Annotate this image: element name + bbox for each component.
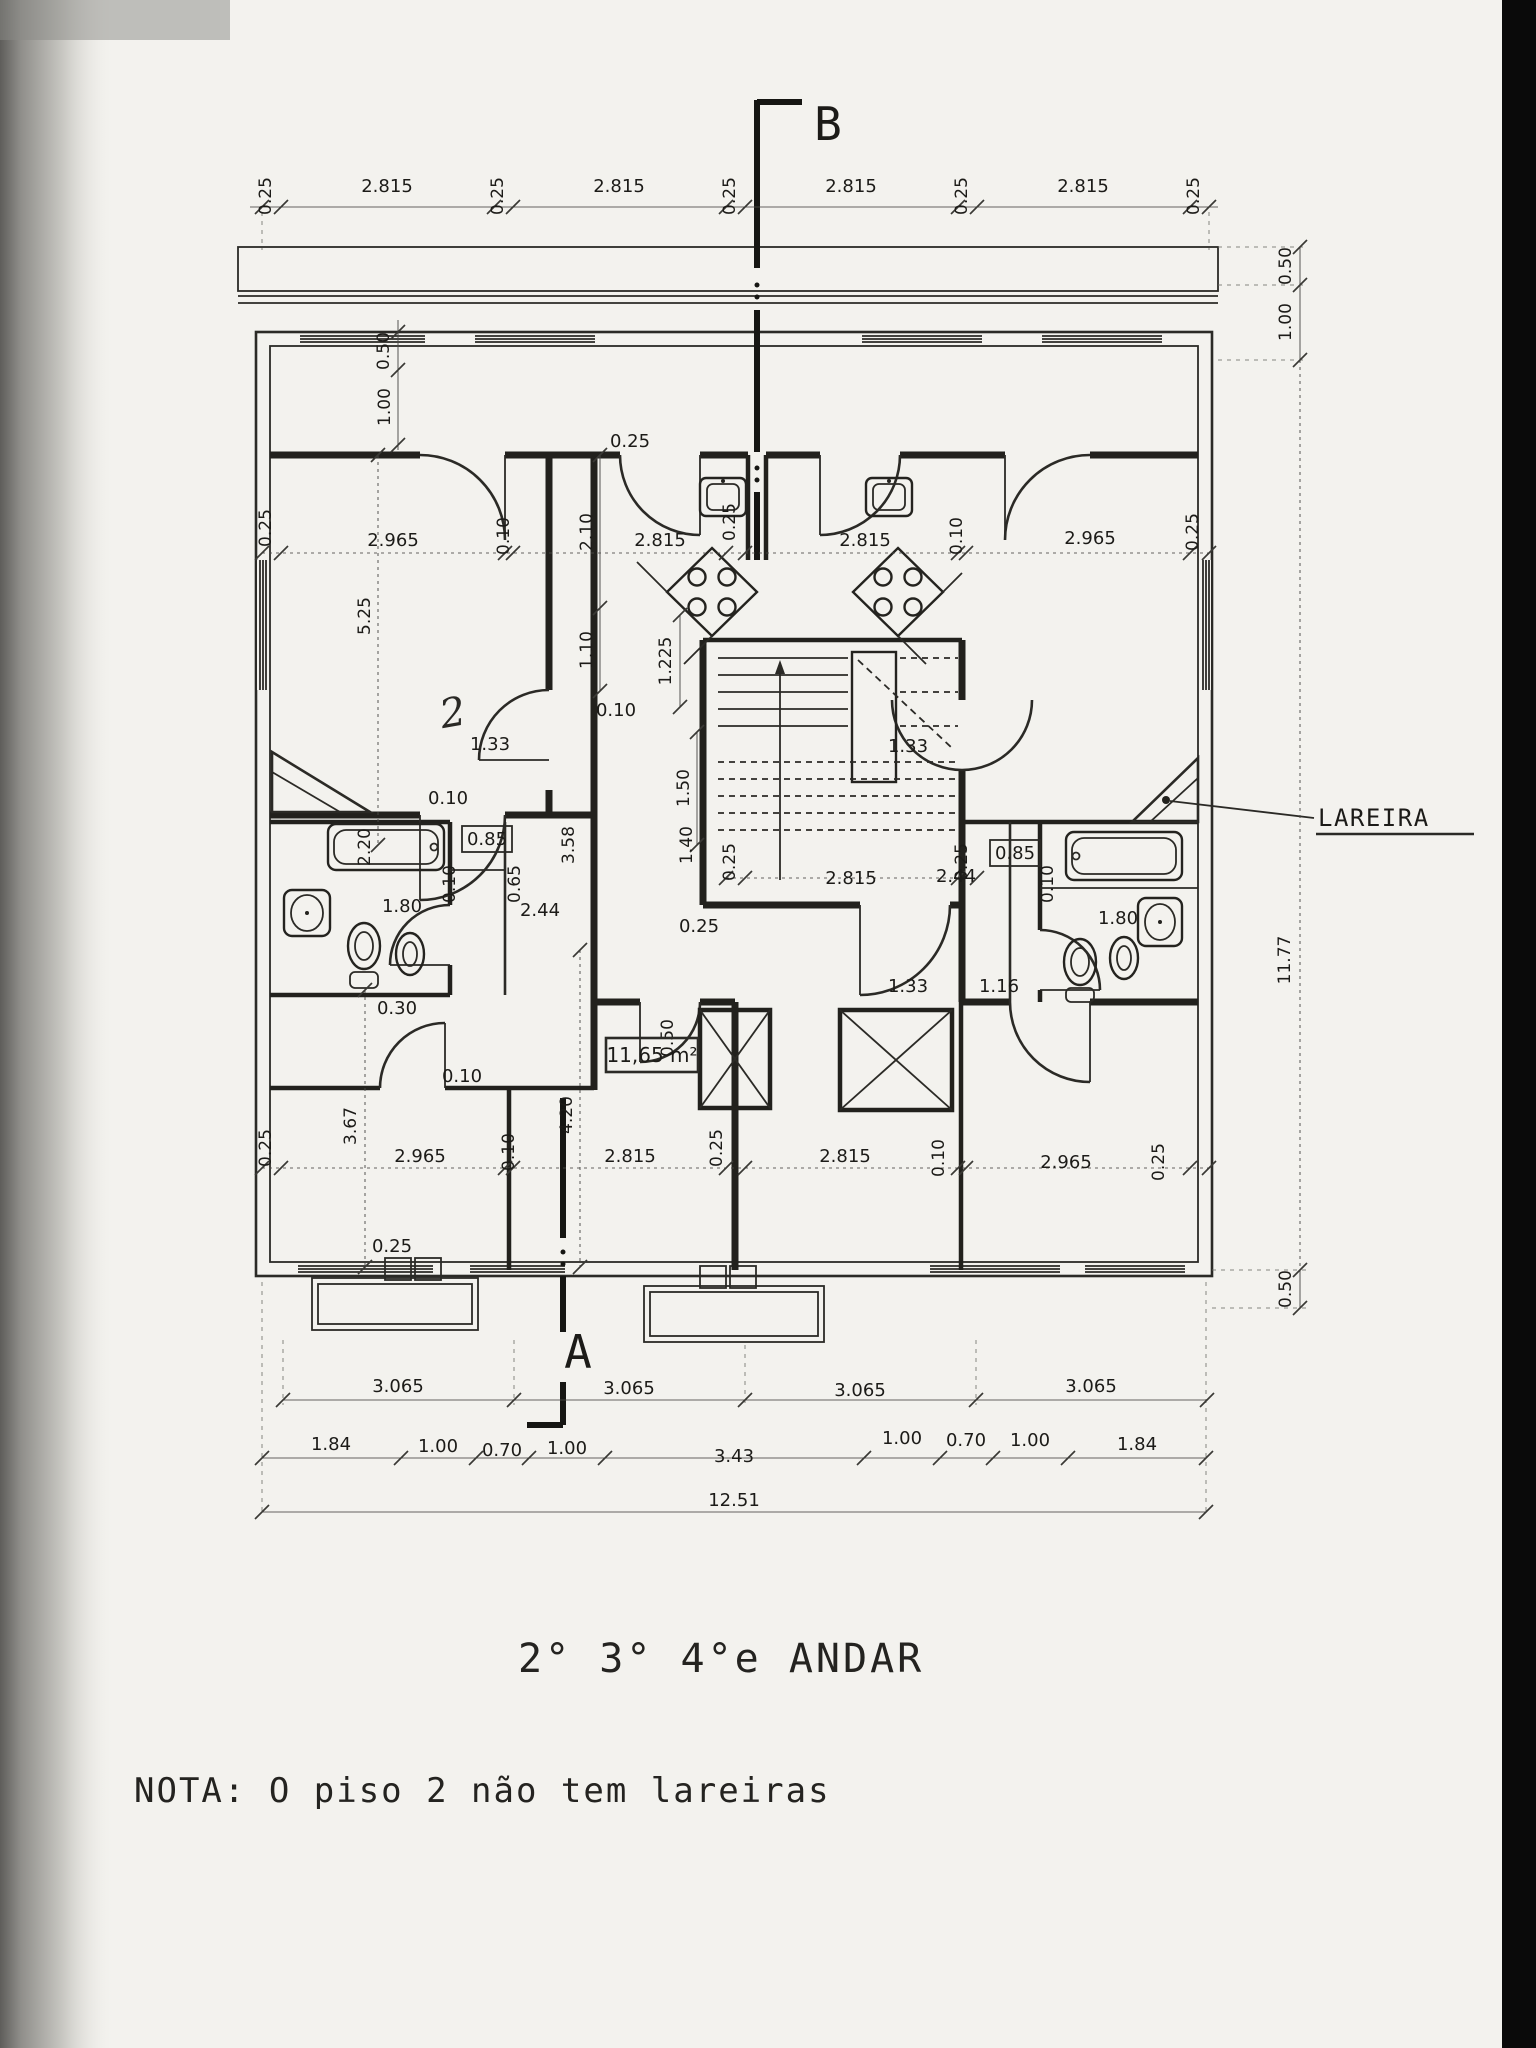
dim-label: 0.10: [499, 1133, 519, 1171]
dim-label: 0.10: [929, 1139, 949, 1177]
dim-label: 12.51: [708, 1490, 760, 1511]
lareira-label: LAREIRA: [1318, 804, 1430, 832]
dim-label: 0.10: [440, 865, 460, 903]
dim-label: 2.44: [520, 900, 560, 921]
dim-label: 2.815: [839, 530, 891, 551]
scan-edge-right: [1502, 0, 1536, 2048]
dim-label: 2.10: [577, 513, 597, 551]
scanned-floor-plan-page: LAREIRA B A: [0, 0, 1536, 2048]
lareira-leader-dot: [1162, 796, 1170, 804]
dim-label: 3.67: [341, 1107, 361, 1145]
dim-label: 1.00: [882, 1428, 922, 1449]
dim-label: 2.965: [367, 530, 419, 551]
dim-label: 0.25: [488, 177, 508, 215]
dim-label: 1.225: [656, 637, 676, 686]
dim-label: 0.25: [707, 1129, 727, 1167]
dim-label: 0.25: [720, 843, 740, 881]
dim-label: 2.815: [593, 176, 645, 197]
dim-label: 0.25: [1183, 513, 1203, 551]
dim-label: 1.80: [1098, 908, 1138, 929]
dim-label: 1.00: [1276, 303, 1296, 341]
dim-label: 0.70: [946, 1430, 986, 1451]
dim-label: 0.10: [428, 788, 468, 809]
dim-label: 1.84: [1117, 1434, 1157, 1455]
dim-label: 0.25: [256, 1129, 276, 1167]
dim-label: 0.25: [256, 509, 276, 547]
dim-label: 0.25: [720, 177, 740, 215]
dim-label: 0.50: [1276, 1270, 1296, 1308]
dim-label: 2.20: [355, 828, 375, 866]
dim-label: 0.30: [377, 998, 417, 1019]
dim-label: 2.815: [361, 176, 413, 197]
dim-label: 2.965: [394, 1146, 446, 1167]
floor-plan-drawing: LAREIRA B A: [0, 0, 1536, 2048]
section-b-label: B: [814, 97, 842, 151]
dim-label: 2.965: [1040, 1152, 1092, 1173]
dim-label: 0.10: [494, 517, 514, 555]
dim-label: 1.33: [888, 736, 928, 757]
dim-label: 2.965: [1064, 528, 1116, 549]
dim-label: 1.00: [375, 388, 395, 426]
plan-note: NOTA: O piso 2 não tem lareiras: [134, 1771, 831, 1811]
dim-label: 0.25: [720, 503, 740, 541]
dim-label: 0.10: [947, 517, 967, 555]
dim-label: 1.33: [470, 734, 510, 755]
dim-label: 1.50: [674, 769, 694, 807]
dim-label: 3.58: [559, 826, 579, 864]
scan-shadow-left: [0, 0, 115, 2048]
dim-label: 0.50: [374, 332, 394, 370]
dim-label: 3.065: [834, 1380, 886, 1401]
dim-label: 0.85: [995, 843, 1035, 864]
dim-label: 5.25: [355, 597, 375, 635]
dim-label: 0.10: [442, 1066, 482, 1087]
dim-label: 3.43: [714, 1446, 754, 1467]
dim-label: 0.25: [372, 1236, 412, 1257]
dim-label: 1.00: [418, 1436, 458, 1457]
dim-label: 4.20: [557, 1096, 577, 1134]
dim-label: 2.815: [1057, 176, 1109, 197]
dim-label: 2.815: [604, 1146, 656, 1167]
section-a-label: A: [564, 1325, 592, 1379]
dim-label: 2.44: [936, 866, 976, 887]
dim-label: 1.00: [1010, 1430, 1050, 1451]
dim-label: 0.25: [679, 916, 719, 937]
dim-label: 1.00: [547, 1438, 587, 1459]
dim-label: 1.16: [979, 976, 1019, 997]
dim-label: 0.25: [1184, 177, 1204, 215]
dim-label: 3.065: [372, 1376, 424, 1397]
dim-label: 0.65: [505, 865, 525, 903]
dim-label: 0.10: [596, 700, 636, 721]
dim-label: 0.25: [952, 177, 972, 215]
plan-title: 2° 3° 4°e ANDAR: [518, 1636, 924, 1682]
dim-label: 2.815: [634, 530, 686, 551]
dim-label: 0.50: [1276, 247, 1296, 285]
dim-label: 0.25: [256, 177, 276, 215]
dim-label: 2.815: [819, 1146, 871, 1167]
dim-label: 0.25: [1149, 1143, 1169, 1181]
dim-label: 1.33: [888, 976, 928, 997]
dim-label: 1.80: [382, 896, 422, 917]
dim-label: 3.065: [1065, 1376, 1117, 1397]
dim-label: 1.40: [677, 826, 697, 864]
dim-label: 11.77: [1275, 936, 1295, 985]
dim-label: 2.815: [825, 176, 877, 197]
dim-label: 1.10: [577, 631, 597, 669]
scan-shadow-top-left: [0, 0, 230, 40]
dim-label: 3.065: [603, 1378, 655, 1399]
dim-label: 0.10: [1038, 865, 1058, 903]
dim-label: 0.25: [610, 431, 650, 452]
dim-label: 0.85: [467, 829, 507, 850]
area-label: 11,65 m²: [606, 1043, 697, 1067]
dim-label: 1.84: [311, 1434, 351, 1455]
dim-label: 2.815: [825, 868, 877, 889]
dim-label: 0.70: [482, 1440, 522, 1461]
